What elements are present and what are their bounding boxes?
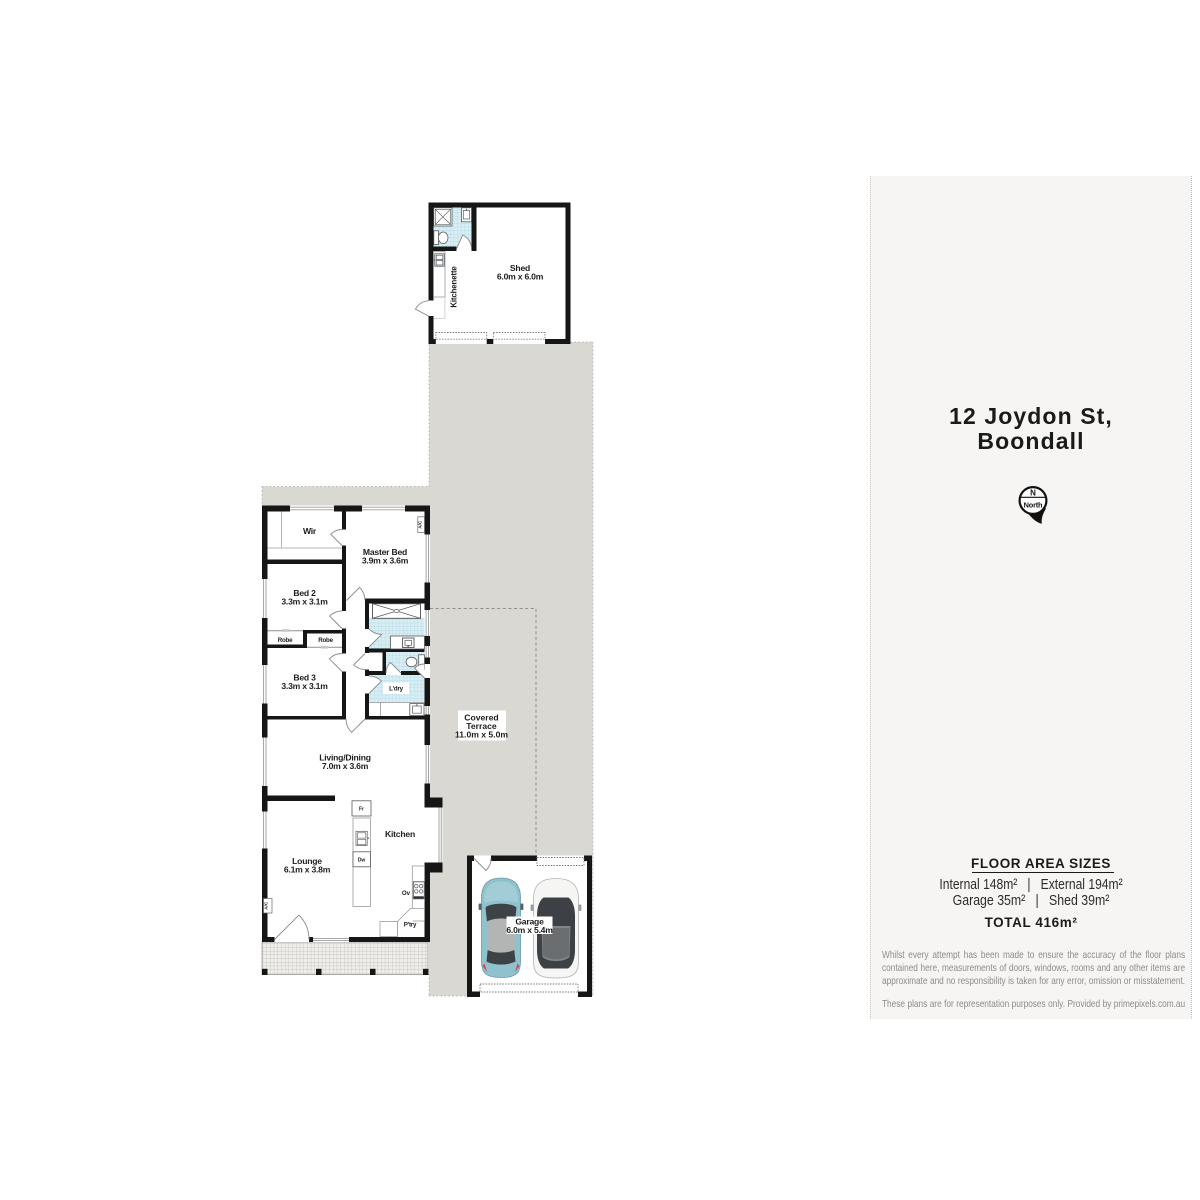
svg-text:P'try: P'try (404, 921, 417, 928)
svg-text:Fr: Fr (359, 807, 364, 813)
svg-text:L'dry: L'dry (389, 686, 404, 693)
svg-text:Ov: Ov (402, 890, 411, 897)
svg-text:Kitchenette: Kitchenette (450, 266, 459, 308)
svg-text:3.9m x 3.6m: 3.9m x 3.6m (362, 556, 409, 566)
svg-text:Robe: Robe (278, 637, 293, 644)
svg-text:11.0m x 5.0m: 11.0m x 5.0m (455, 729, 508, 739)
svg-text:Dw: Dw (358, 858, 366, 864)
svg-text:Kitchen: Kitchen (385, 829, 415, 839)
svg-text:7.0m x 3.6m: 7.0m x 3.6m (322, 761, 369, 771)
svg-text:3.3m x 3.1m: 3.3m x 3.1m (281, 596, 328, 606)
svg-text:3.3m x 3.1m: 3.3m x 3.1m (281, 681, 328, 691)
svg-text:6.0m x 6.0m: 6.0m x 6.0m (497, 272, 544, 282)
svg-text:Robe: Robe (318, 637, 333, 644)
svg-text:A/C: A/C (264, 901, 269, 910)
svg-text:6.0m x 5.4m: 6.0m x 5.4m (506, 925, 553, 935)
svg-text:Wir: Wir (303, 526, 317, 536)
svg-text:6.1m x 3.8m: 6.1m x 3.8m (284, 864, 331, 874)
svg-text:A/C: A/C (417, 520, 422, 529)
